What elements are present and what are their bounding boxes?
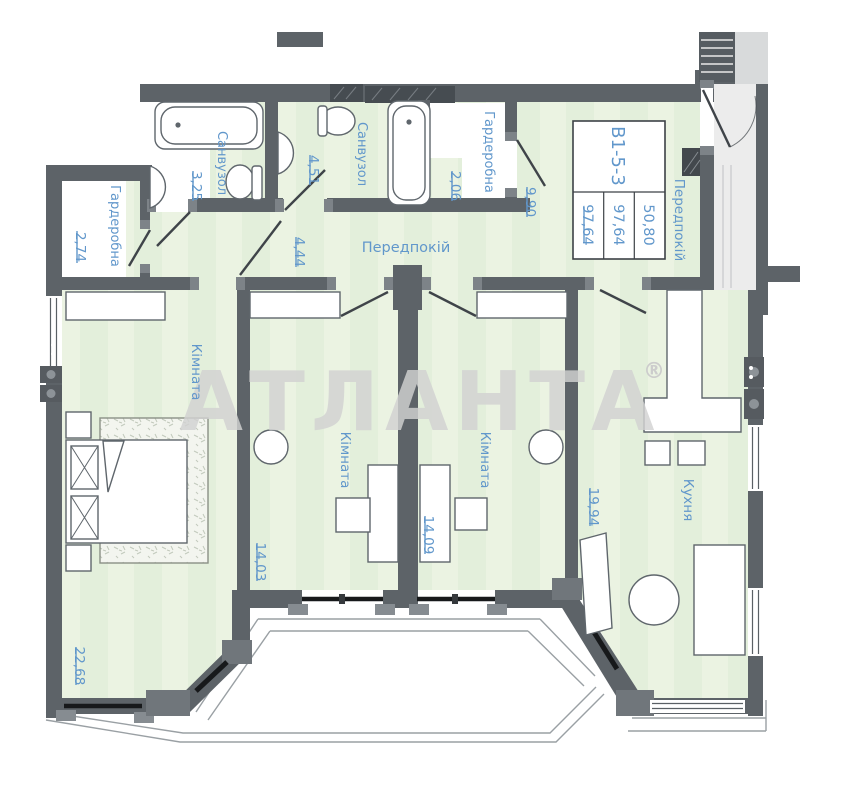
- area-bedroom: 22,68: [71, 647, 87, 686]
- wall-hall-bottom-d: [475, 277, 592, 290]
- toilet-small: [226, 165, 262, 200]
- wall-bath-bottom-b: [192, 198, 283, 212]
- wall-entry: [700, 148, 714, 290]
- window-mullion-2: [452, 594, 458, 604]
- area-wardrobe-left: 2,74: [72, 232, 88, 262]
- stamp-living-area: 50,80: [640, 204, 656, 246]
- registered-mark: ®: [643, 359, 665, 384]
- window-right-gap-1: [748, 425, 763, 491]
- room1-desk: [368, 465, 398, 562]
- window-sill-1: [288, 604, 308, 615]
- wall-upper-stub: [277, 32, 323, 47]
- window-right-gap-2: [748, 588, 763, 656]
- area-room-mid-left: 14,03: [252, 543, 268, 582]
- wall-hall-bottom-a: [46, 277, 198, 290]
- stair-upper-bg: [735, 32, 768, 84]
- stamp-total-area: 97,64: [579, 204, 595, 246]
- room2-table: [455, 498, 487, 530]
- label-wardrobe-left: Гардеробна: [107, 185, 122, 267]
- wall-stair-right: [756, 70, 768, 315]
- watermark-text: АТЛАНТА: [180, 355, 661, 450]
- bathtub-large: [388, 101, 430, 205]
- kitchen-bench: [580, 533, 612, 635]
- label-bath-large: Санвузол: [354, 122, 369, 186]
- label-kitchen: Кухня: [680, 479, 696, 522]
- area-bath-large: 4,51: [305, 155, 321, 185]
- label-hall-right: Передпокій: [671, 179, 687, 261]
- vent-block-1: [330, 84, 363, 102]
- wall-hall-bottom-b: [238, 277, 334, 290]
- window-left-gap: [46, 296, 62, 370]
- stair-corridor: [714, 84, 756, 290]
- label-hall: Передпокій: [362, 240, 451, 256]
- stamp-reduced-area: 97,64: [610, 204, 626, 246]
- area-bath-small: 3,25: [188, 171, 204, 201]
- stamp-unit: В1-5-3: [607, 126, 628, 186]
- wall-dot-3: [749, 366, 753, 370]
- nightstand-top: [66, 412, 91, 438]
- wall-dot-1: [51, 343, 55, 347]
- room1-table: [336, 498, 370, 532]
- kitchen-cabinet: [694, 545, 745, 655]
- area-corridor: 4,44: [291, 237, 307, 267]
- room2-wardrobe: [477, 292, 567, 318]
- floor-plan-page: АТЛАНТА ® В1-5-3 97,64 97,64 50,80 Гарде…: [0, 0, 843, 800]
- kitchen-table: [629, 575, 679, 625]
- apartment-stamp: В1-5-3 97,64 97,64 50,80: [573, 121, 665, 259]
- label-wardrobe-top: Гардеробна: [481, 111, 496, 193]
- area-wardrobe-top: 2,06: [447, 171, 463, 201]
- toilet-large: [318, 106, 355, 136]
- wall-dot-2: [51, 352, 55, 356]
- nightstand-bottom: [66, 545, 91, 571]
- window-sill-2: [375, 604, 395, 615]
- wall-dot-4: [749, 375, 753, 379]
- floor-plan: АТЛАНТА ® В1-5-3 97,64 97,64 50,80 Гарде…: [0, 0, 843, 800]
- window-sill-5: [56, 710, 76, 721]
- window-jamb-diag-3: [552, 578, 582, 600]
- watermark: АТЛАНТА ®: [180, 355, 666, 450]
- label-room-mid-right: Кімната: [477, 432, 493, 489]
- window-kitchen-bottom-gap: [650, 700, 745, 713]
- wall-left: [46, 165, 62, 718]
- window-jamb-diag-1: [222, 640, 252, 664]
- window-jamb-diag-4: [616, 690, 654, 716]
- area-kitchen: 19,94: [585, 488, 601, 527]
- area-room-mid-right: 14,09: [420, 516, 436, 555]
- label-bath-small: Санвузол: [214, 131, 229, 195]
- bed: [66, 440, 187, 543]
- room1-wardrobe: [250, 292, 340, 318]
- window-jamb-diag-2: [146, 690, 190, 716]
- bedroom-wardrobe: [66, 292, 165, 320]
- wall-bath-divider: [265, 100, 278, 212]
- window-sill-3: [409, 604, 429, 615]
- window-mullion-1: [339, 594, 345, 604]
- label-room-mid-left: Кімната: [337, 432, 353, 489]
- bathtub-small: [155, 102, 263, 149]
- terrace-parapet: [196, 619, 595, 720]
- window-sill-4: [487, 604, 507, 615]
- kitchen-stove-2: [678, 441, 705, 465]
- area-hall: 9,90: [522, 187, 538, 217]
- wardrobe-left-strip: [126, 180, 140, 277]
- label-bedroom: Кімната: [188, 344, 204, 401]
